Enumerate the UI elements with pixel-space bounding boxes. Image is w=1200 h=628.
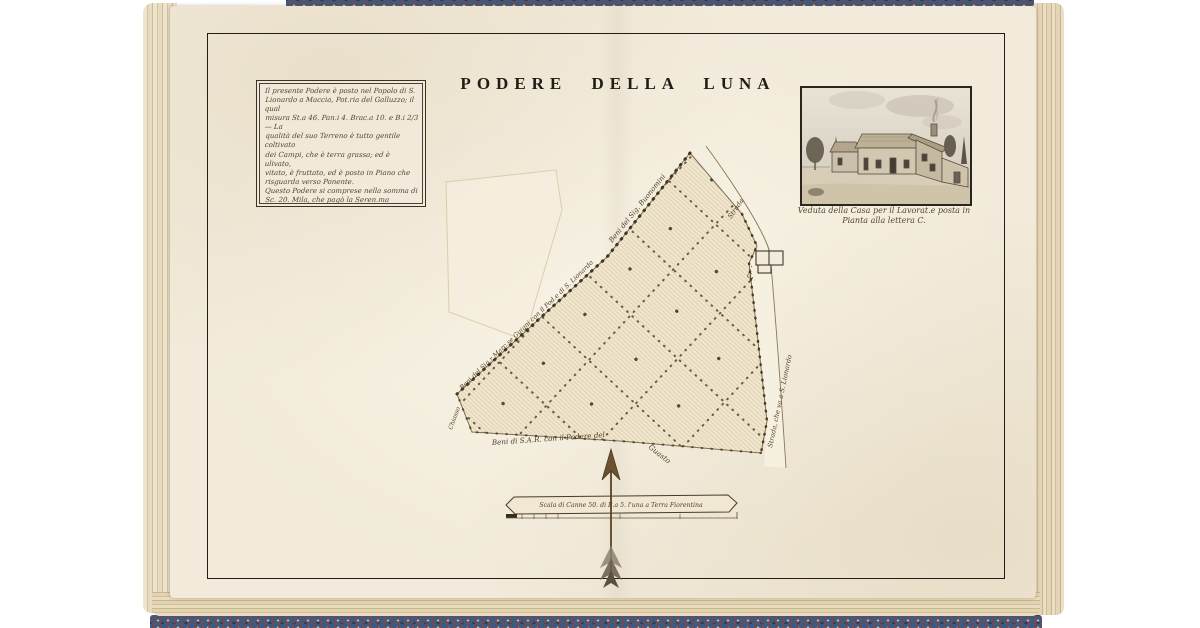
atlas-spread: PODERE DELLA LUNA Il presente Podere è p… (0, 0, 1200, 628)
scale-bar: Scala di Canne 50. di B.a 5. l'una a Ter… (506, 495, 737, 519)
scale-bar-label: Scala di Canne 50. di B.a 5. l'una a Ter… (539, 502, 703, 509)
estate-map: C. Beni del Sig. Buonomini Beni del Sig.… (0, 0, 1200, 628)
label-bottom-edge-2: Guasto (647, 442, 673, 465)
house-letter-label: C. (747, 272, 754, 280)
north-arrow (600, 449, 622, 588)
label-chiasso: Chiasso (447, 406, 462, 431)
